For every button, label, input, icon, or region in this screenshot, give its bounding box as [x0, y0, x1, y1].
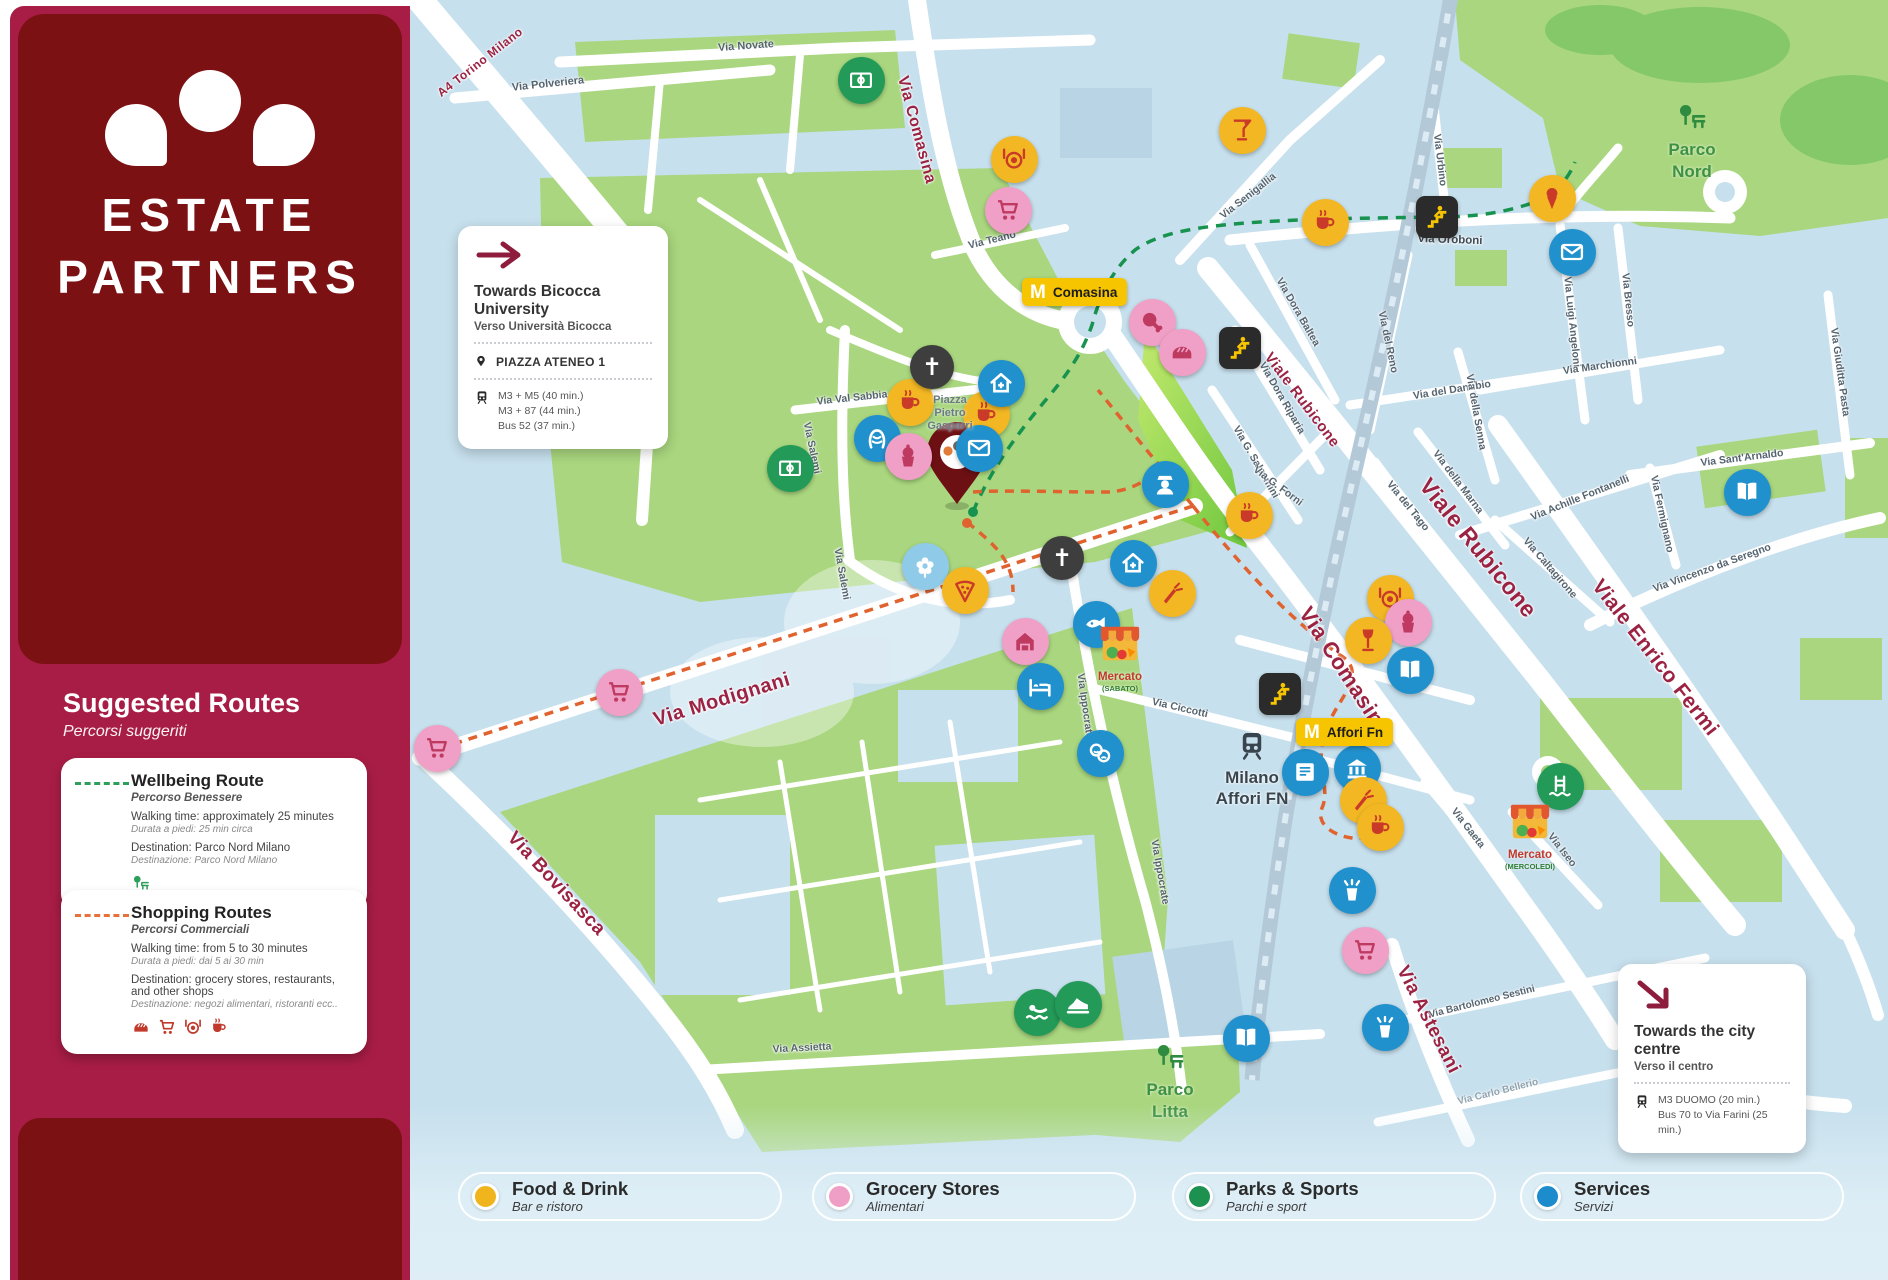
train-icon [1634, 1093, 1650, 1114]
city-centre-transit-lines: M3 DUOMO (20 min.)Bus 70 to Via Farini (… [1658, 1093, 1790, 1139]
pool-ladder-icon [1546, 772, 1574, 800]
legend-color-dot [1186, 1183, 1213, 1210]
swim-marker[interactable] [1014, 989, 1061, 1036]
mail-marker[interactable] [1549, 229, 1596, 276]
coffee-marker[interactable] [1302, 199, 1349, 246]
stairs-icon [1423, 203, 1451, 231]
meat-icon [1138, 308, 1166, 336]
sneaker-marker[interactable] [1055, 981, 1102, 1028]
brand-panel: ESTATE PARTNERS [18, 14, 402, 664]
sidebar: ESTATE PARTNERS Suggested Routes Percors… [10, 6, 410, 1280]
route-subtitle: Percorsi Commerciali [131, 924, 353, 936]
flower-marker[interactable] [902, 543, 949, 590]
wine-icon [1354, 626, 1382, 654]
bicocca-transit-lines: M3 + M5 (40 min.)M3 + 87 (44 min.)Bus 52… [498, 389, 583, 435]
cart-icon [423, 734, 451, 762]
market-stall-sublabel: (MERCOLEDÌ) [1500, 862, 1560, 871]
wine-marker[interactable] [1345, 617, 1392, 664]
market-stall[interactable]: Mercato(MERCOLEDÌ) [1500, 800, 1560, 871]
park-name-line: Litta [1110, 1101, 1230, 1122]
brand-line-1: ESTATE [18, 184, 402, 246]
piazza-line: Gasparri [910, 420, 990, 433]
pizza-marker[interactable] [942, 567, 989, 614]
coffee-marker[interactable] [1226, 492, 1273, 539]
park-name-line: Parco [1632, 139, 1752, 160]
stairs-marker[interactable] [1416, 196, 1458, 238]
transit-line: Bus 52 (37 min.) [498, 419, 583, 434]
bicocca-title: Towards Bicocca University [474, 283, 652, 319]
route-destination: Destination: grocery stores, restaurants… [131, 974, 353, 998]
legend-text: Grocery StoresAlimentari [866, 1179, 1000, 1213]
field-marker[interactable] [767, 445, 814, 492]
home-plus-icon [1119, 549, 1147, 577]
legend-label: Services [1574, 1179, 1650, 1198]
legend-sublabel: Servizi [1574, 1199, 1650, 1214]
legend-label: Parks & Sports [1226, 1179, 1359, 1198]
coffee-marker[interactable] [1357, 804, 1404, 851]
legend-color-dot [1534, 1183, 1561, 1210]
train-icon [474, 389, 490, 410]
market-stall-sublabel: (SABATO) [1090, 684, 1150, 693]
metro-station-comasina[interactable]: MComasina [1022, 278, 1127, 306]
icecream-marker[interactable] [1529, 175, 1576, 222]
field-icon [776, 454, 804, 482]
waste-bin-icon [1371, 1013, 1399, 1041]
waste-bin-marker[interactable] [1329, 867, 1376, 914]
market-stall-icon [1090, 622, 1150, 671]
cart-icon [605, 678, 633, 706]
market-house-marker[interactable] [1002, 618, 1049, 665]
legend-sublabel: Bar e ristoro [512, 1199, 628, 1214]
book-marker[interactable] [1724, 469, 1771, 516]
stairs-icon [1226, 334, 1254, 362]
waste-bin-marker[interactable] [1362, 1004, 1409, 1051]
legend-text: Parks & SportsParchi e sport [1226, 1179, 1359, 1213]
legend-label: Food & Drink [512, 1179, 628, 1198]
metro-station-label: Affori Fn [1327, 725, 1383, 740]
cart-icon [1351, 936, 1379, 964]
transit-line: M3 DUOMO (20 min.) [1658, 1093, 1790, 1108]
field-marker[interactable] [838, 57, 885, 104]
route-destination-it: Destinazione: negozi alimentari, ristora… [131, 999, 353, 1010]
suggested-routes-title: Suggested Routes [63, 688, 300, 719]
city-centre-subtitle: Verso il centro [1634, 1061, 1790, 1073]
arrow-down-right-icon [1634, 978, 1674, 1012]
pastry-icon [894, 442, 922, 470]
bread-marker[interactable] [1159, 329, 1206, 376]
route-destination: Destination: Parco Nord Milano [131, 842, 353, 854]
legend-sublabel: Parchi e sport [1226, 1199, 1359, 1214]
legend-item-grocery-stores: Grocery StoresAlimentari [812, 1172, 1136, 1221]
book-icon [1733, 478, 1761, 506]
church-cross-icon: ✝ [922, 355, 942, 379]
book-icon [1396, 656, 1424, 684]
market-stall-label: Mercato [1090, 671, 1150, 684]
legend-color-dot [472, 1183, 499, 1210]
route-walking-time-it: Durata a piedi: dai 5 ai 30 min [131, 956, 353, 967]
logo-shape-left [105, 104, 167, 166]
metro-m-logo: M [1030, 283, 1046, 302]
carrot-marker[interactable] [1149, 570, 1196, 617]
route-walking-time-it: Durata a piedi: 25 min circa [131, 824, 353, 835]
stairs-marker[interactable] [1219, 327, 1261, 369]
transit-line: Bus 70 to Via Farini (25 min.) [1658, 1108, 1790, 1138]
page: ESTATE PARTNERS Suggested Routes Percors… [0, 0, 1888, 1280]
divider [474, 342, 652, 344]
route-walking-time: Walking time: from 5 to 30 minutes [131, 943, 353, 955]
pastry-marker[interactable] [1385, 599, 1432, 646]
home-plus-icon [987, 369, 1015, 397]
legend-item-services: ServicesServizi [1520, 1172, 1844, 1221]
transit-line: M3 + M5 (40 min.) [498, 389, 583, 404]
route-title: Shopping Routes [131, 903, 353, 923]
restaurant-icon [1000, 145, 1028, 173]
cart-marker[interactable] [596, 669, 643, 716]
market-stall-label: Mercato [1500, 849, 1560, 862]
church-cross-icon: ✝ [1052, 546, 1072, 570]
arrow-right-icon [474, 240, 526, 270]
legend-color-dot [826, 1183, 853, 1210]
waste-bin-icon [1338, 876, 1366, 904]
city-centre-title: Towards the city centre [1634, 1023, 1790, 1059]
route-dash-line [75, 914, 129, 917]
bicocca-stop: PIAZZA ATENEO 1 [496, 353, 605, 369]
route-icon-row [131, 1017, 353, 1042]
route-card-wellbeing: Wellbeing RoutePercorso BenessereWalking… [61, 758, 367, 910]
logo-shape-circle [179, 70, 241, 132]
legend-item-food-drink: Food & DrinkBar e ristoro [458, 1172, 782, 1221]
pastry-icon [1394, 608, 1422, 636]
piazza-line: Pietro [910, 407, 990, 420]
theater-marker[interactable] [1077, 730, 1124, 777]
stairs-marker[interactable] [1259, 673, 1301, 715]
location-pin-icon [474, 353, 488, 369]
stairs-icon [1266, 680, 1294, 708]
park-label-litta: ParcoLitta [1110, 1040, 1230, 1122]
coffee-icon [1366, 813, 1394, 841]
carrot-icon [1158, 579, 1186, 607]
market-house-icon [1011, 627, 1039, 655]
cart-marker[interactable] [414, 725, 461, 772]
icecream-icon [1538, 184, 1566, 212]
legend-text: ServicesServizi [1574, 1179, 1650, 1213]
suggested-routes-header: Suggested Routes Percorsi suggeriti [63, 688, 300, 741]
swim-icon [1023, 998, 1051, 1026]
park-name-line: Parco [1110, 1079, 1230, 1100]
coffee-icon [1235, 501, 1263, 529]
flower-icon [911, 552, 939, 580]
bed-marker[interactable] [1017, 663, 1064, 710]
route-bread-icon [131, 1017, 151, 1042]
rail-station-milano-affori-fn[interactable]: MilanoAffori FN [1182, 728, 1322, 810]
legend-label: Grocery Stores [866, 1179, 1000, 1198]
divider [474, 378, 652, 380]
piazza-pietro-gasparri-label: PiazzaPietroGasparri [910, 394, 990, 434]
route-destination-it: Destinazione: Parco Nord Milano [131, 855, 353, 866]
sneaker-icon [1064, 990, 1092, 1018]
brand-text: ESTATE PARTNERS [18, 184, 402, 308]
church-marker[interactable]: ✝ [1040, 536, 1084, 580]
divider [1634, 1082, 1790, 1084]
mail-icon [1558, 238, 1586, 266]
route-subtitle: Percorso Benessere [131, 792, 353, 804]
book-icon [1232, 1024, 1260, 1052]
route-card-body: Shopping RoutesPercorsi CommercialiWalki… [131, 903, 353, 1042]
cart-icon [994, 196, 1022, 224]
route-dash-line [75, 782, 129, 785]
brand-line-2: PARTNERS [18, 246, 402, 308]
route-title: Wellbeing Route [131, 771, 353, 791]
suggested-routes-subtitle: Percorsi suggeriti [63, 723, 300, 741]
home-plus-marker[interactable] [1110, 540, 1157, 587]
police-icon [1151, 470, 1179, 498]
cart-marker[interactable] [985, 187, 1032, 234]
mail-icon [965, 434, 993, 462]
transit-line: M3 + 87 (44 min.) [498, 404, 583, 419]
metro-station-label: Comasina [1053, 285, 1118, 300]
pizza-icon [951, 576, 979, 604]
field-icon [847, 66, 875, 94]
bicocca-direction-card: Towards Bicocca University Verso Univers… [458, 226, 668, 449]
route-coffee-icon [209, 1017, 229, 1042]
bread-icon [1168, 338, 1196, 366]
cocktail-icon [1228, 116, 1256, 144]
cocktail-marker[interactable] [1219, 107, 1266, 154]
park-label-nord: ParcoNord [1632, 100, 1752, 182]
cart-marker[interactable] [1342, 927, 1389, 974]
route-card-shopping: Shopping RoutesPercorsi CommercialiWalki… [61, 890, 367, 1054]
route-cart-icon [157, 1017, 177, 1042]
tree-bench-icon [1110, 1040, 1230, 1079]
route-card-body: Wellbeing RoutePercorso BenessereWalking… [131, 771, 353, 898]
market-stall[interactable]: Mercato(SABATO) [1090, 622, 1150, 693]
park-name-line: Nord [1632, 161, 1752, 182]
pastry-marker[interactable] [885, 433, 932, 480]
bed-icon [1026, 672, 1054, 700]
logo-shape-right [253, 104, 315, 166]
restaurant-marker[interactable] [991, 136, 1038, 183]
sidebar-footer [18, 1118, 402, 1280]
legend-item-parks-sports: Parks & SportsParchi e sport [1172, 1172, 1496, 1221]
police-marker[interactable] [1142, 461, 1189, 508]
piazza-line: Piazza [910, 394, 990, 407]
city-centre-direction-card: Towards the city centre Verso il centro … [1618, 964, 1806, 1153]
map-canvas[interactable]: A4 Torino MilanoVia ComasinaVia Comasina… [410, 0, 1888, 1280]
tree-bench-icon [1632, 100, 1752, 139]
coffee-icon [1311, 208, 1339, 236]
book-marker[interactable] [1387, 647, 1434, 694]
church-marker[interactable]: ✝ [910, 345, 954, 389]
bicocca-subtitle: Verso Università Bicocca [474, 321, 652, 333]
theater-icon [1086, 739, 1114, 767]
route-walking-time: Walking time: approximately 25 minutes [131, 811, 353, 823]
legend-text: Food & DrinkBar e ristoro [512, 1179, 628, 1213]
route-restaurant-icon [183, 1017, 203, 1042]
legend-sublabel: Alimentari [866, 1199, 1000, 1214]
train-icon [1182, 728, 1322, 767]
market-stall-icon [1500, 800, 1560, 849]
estate-partners-logo [18, 70, 402, 180]
rail-station-name: Affori FN [1182, 788, 1322, 809]
rail-station-name: Milano [1182, 767, 1322, 788]
